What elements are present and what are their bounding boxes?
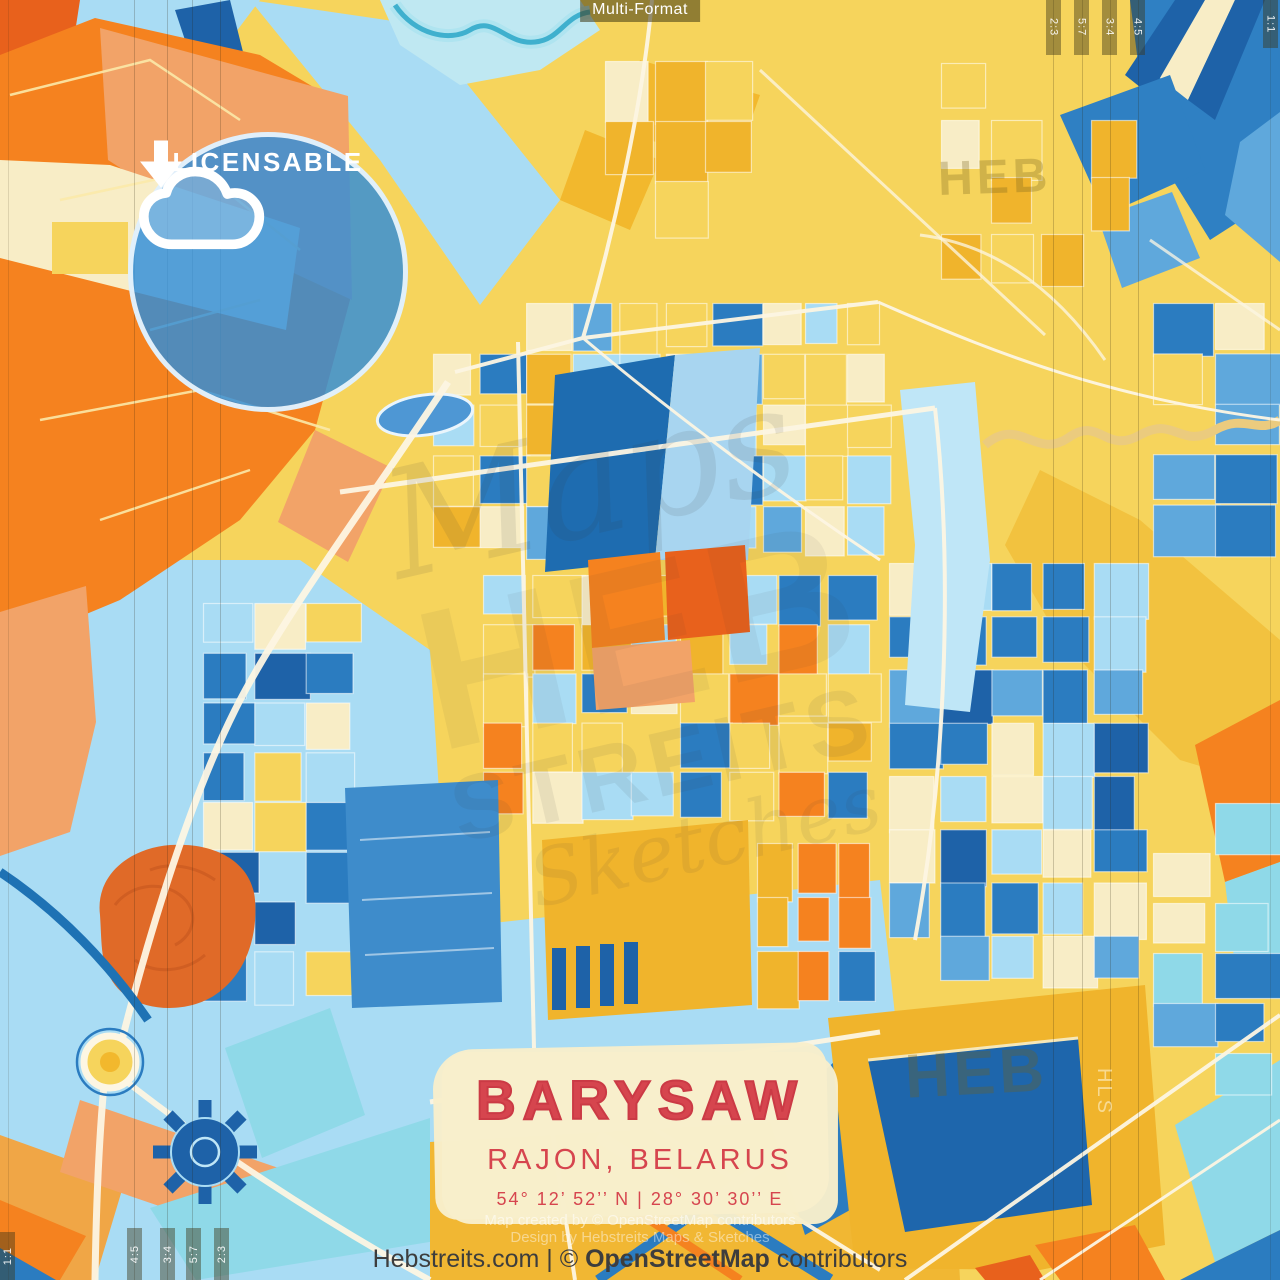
crop-guide-line bbox=[1110, 0, 1111, 1280]
ratio-label: 3:4 bbox=[1104, 18, 1116, 36]
ratio-label: 5:7 bbox=[1076, 18, 1088, 36]
ratio-marker-5-7: 5:7 bbox=[1074, 0, 1089, 55]
licensable-badge: LICENSABLE bbox=[128, 132, 408, 412]
crop-guide-line bbox=[1270, 0, 1271, 1280]
ratio-marker-3-4: 3:4 bbox=[1102, 0, 1117, 55]
ratio-label: 1:1 bbox=[1265, 15, 1277, 33]
ratio-marker-2-3: 2:3 bbox=[1046, 0, 1061, 55]
format-label: Multi-Format bbox=[580, 0, 700, 22]
ratio-marker-1-1-top: 1:1 bbox=[1263, 0, 1278, 48]
footer-credit: Hebstreits.com | © OpenStreetMap contrib… bbox=[0, 1245, 1280, 1274]
ratio-marker-4-5: 4:5 bbox=[1130, 0, 1145, 55]
map-poster: 2:3 5:7 3:4 4:5 1:1 4:5 3:4 5:7 2:3 1:1 … bbox=[0, 0, 1280, 1280]
crop-guide-line bbox=[1082, 0, 1083, 1280]
footer-site: Hebstreits.com | © bbox=[373, 1245, 585, 1273]
title-card: BARYSAW RAJON, BELARUS 54° 12’ 52’’ N | … bbox=[442, 1052, 838, 1224]
crop-guide-line bbox=[1053, 0, 1054, 1280]
crop-guide-line bbox=[1138, 0, 1139, 1280]
coordinates: 54° 12’ 52’’ N | 28° 30’ 30’’ E bbox=[476, 1189, 804, 1210]
ratio-label: 2:3 bbox=[1048, 18, 1060, 36]
footer-osm: OpenStreetMap bbox=[585, 1245, 770, 1273]
download-arrow-icon bbox=[133, 139, 189, 191]
footer-suffix: contributors bbox=[770, 1245, 908, 1273]
crop-guide-line bbox=[8, 0, 9, 1280]
ratio-label: 4:5 bbox=[1132, 18, 1144, 36]
region-subtitle: RAJON, BELARUS bbox=[476, 1144, 804, 1177]
city-title: BARYSAW bbox=[476, 1068, 804, 1132]
